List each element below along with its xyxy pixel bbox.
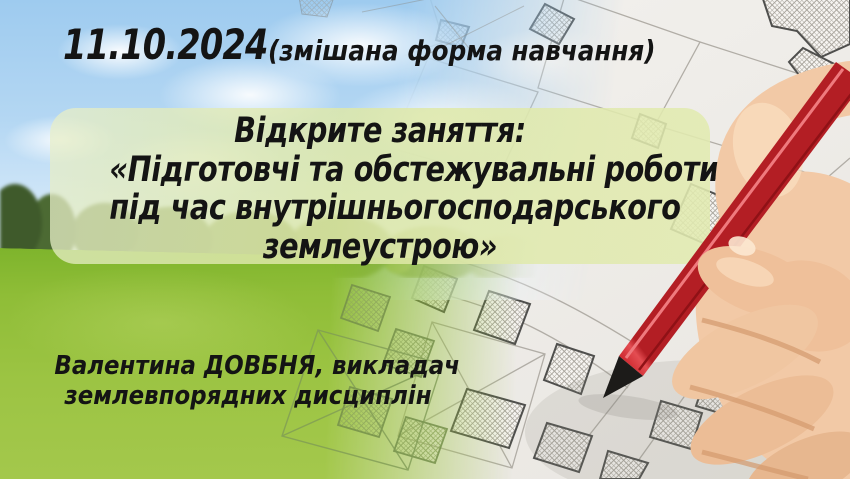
hand-with-pencil-illustration (0, 0, 850, 479)
presentation-slide: 11.10.2024 (змішана форма навчання) Відк… (0, 0, 850, 479)
